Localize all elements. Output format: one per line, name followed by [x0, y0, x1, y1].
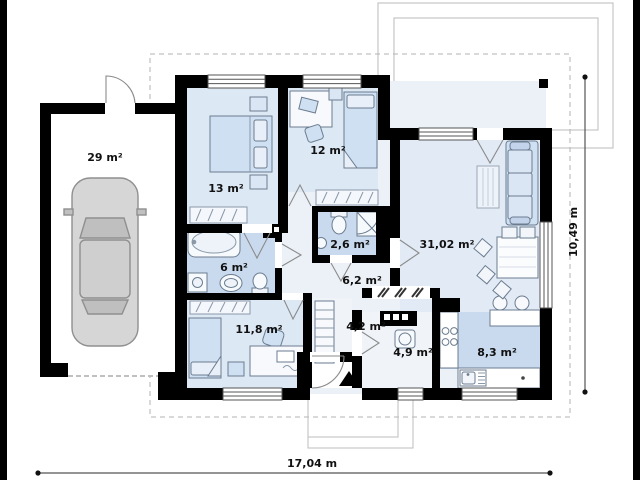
- room-label-utility: 4,9 m²: [393, 346, 433, 359]
- kitchen-peninsula: [490, 310, 540, 326]
- letterbox-right-bar: [633, 0, 640, 480]
- window: [398, 388, 423, 400]
- garage-wall-left: [40, 103, 51, 377]
- bedroom-1-door-opening: [242, 224, 272, 233]
- sink: [460, 370, 486, 386]
- nightstand: [329, 88, 342, 100]
- living-door-opening: [390, 238, 400, 268]
- wall-wc-bottom-b: [352, 255, 378, 263]
- floor-plan-page: 29 m² 13 m² 12 m² 2,6 m² 31,02 m² 6 m² 6…: [0, 0, 640, 480]
- wall-wc-bottom-a: [312, 255, 330, 263]
- wardrobe: [190, 207, 247, 223]
- dimension-width-label: 17,04 m: [287, 457, 337, 470]
- wall-wc-left: [312, 206, 318, 263]
- room-label-garage: 29 m²: [87, 151, 123, 164]
- room-label-living-room: 31,02 m²: [420, 238, 475, 251]
- room-label-bedroom-1: 13 m²: [208, 182, 244, 195]
- window: [540, 222, 552, 308]
- wall-wc-top: [312, 206, 382, 212]
- wall-utility-kitchen: [432, 312, 440, 388]
- wall-left: [175, 75, 187, 400]
- rug: [477, 166, 499, 208]
- bedroom-3-door-opening: [282, 293, 303, 300]
- room-label-bathroom: 6 m²: [220, 261, 248, 274]
- letterbox-left-bar: [0, 0, 7, 480]
- sofa: [506, 141, 538, 225]
- stool: [493, 296, 507, 310]
- washbasin: [188, 273, 207, 292]
- room-label-bedroom-3: 11,8 m²: [235, 323, 282, 336]
- radiator-chevrons: [372, 286, 430, 299]
- garage-side-door-opening: [105, 103, 135, 114]
- room-label-hallway: 6,2 m²: [342, 274, 382, 287]
- wall-living-left-a: [390, 128, 400, 238]
- window: [303, 75, 361, 88]
- nightstand: [250, 175, 267, 189]
- pedestal-basin: [220, 275, 242, 292]
- wall-niche-left: [297, 352, 310, 388]
- wc-door-opening: [330, 255, 352, 263]
- utility-door-opening: [352, 330, 362, 356]
- room-label-kitchen: 8,3 m²: [477, 346, 517, 359]
- stool: [515, 296, 529, 310]
- floor-plan-drawing: 29 m² 13 m² 12 m² 2,6 m² 31,02 m² 6 m² 6…: [0, 0, 640, 480]
- terrace-marker-square: [539, 79, 548, 88]
- room-label-wc: 2,6 m²: [330, 238, 370, 251]
- toilet: [252, 273, 268, 295]
- window: [419, 128, 473, 140]
- garage-wall-foot: [40, 363, 68, 377]
- wall-bottom-right: [362, 388, 552, 400]
- window: [208, 75, 265, 88]
- side-table: [228, 362, 244, 376]
- wardrobe: [190, 301, 250, 314]
- wall-left-pier: [158, 372, 175, 400]
- wardrobe: [316, 190, 378, 205]
- window: [223, 388, 282, 400]
- room-label-bedroom-2: 12 m²: [310, 144, 346, 157]
- entry-door-opening: [310, 352, 340, 362]
- shower: [357, 212, 379, 236]
- wall-bed1-bed2: [278, 87, 288, 195]
- terrace-door-opening: [477, 128, 503, 140]
- car: [64, 178, 146, 346]
- room-label-entry-hall: 4,2 m²: [346, 320, 386, 333]
- wall-bath-bed3: [175, 293, 282, 300]
- wall-kitchen-topleft: [432, 298, 460, 312]
- wall-bed1-bath-a: [175, 224, 242, 233]
- wall-bed3-top-b: [303, 293, 312, 300]
- window: [462, 388, 517, 400]
- nightstand: [250, 97, 267, 111]
- bathroom-door-opening: [275, 242, 282, 268]
- dimension-height-label: 10,49 m: [567, 207, 580, 257]
